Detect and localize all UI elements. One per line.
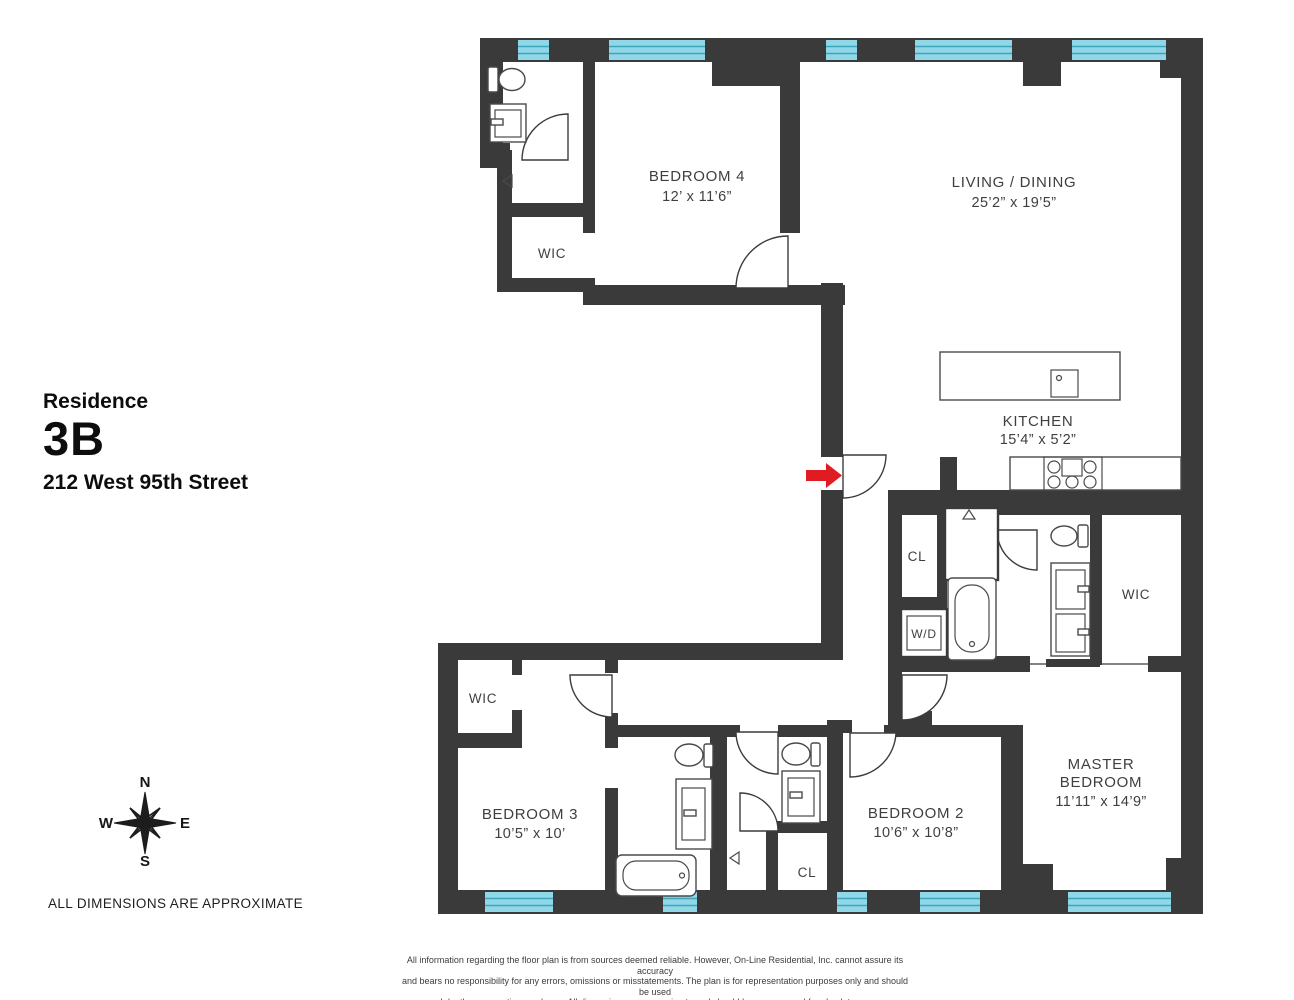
label-cl-hall: CL: [908, 549, 927, 564]
label-kitchen: KITCHEN: [1003, 413, 1074, 430]
label-cl-bed2: CL: [798, 865, 817, 880]
disclaimer: All information regarding the floor plan…: [400, 955, 910, 1000]
label-washer-dryer: W/D: [911, 627, 936, 641]
window-top-5: [1072, 40, 1166, 60]
window-top-3: [826, 40, 857, 60]
bath2-sink: [782, 771, 820, 823]
window-bottom-3: [837, 892, 867, 912]
bath2-toilet: [782, 743, 820, 766]
window-bottom-4: [920, 892, 980, 912]
bath1-sink: [676, 779, 712, 849]
door-master-bath-closet: [997, 530, 1037, 570]
compass-west: W: [99, 815, 114, 832]
door-bathroom-top: [522, 114, 568, 160]
kitchen-island: [940, 352, 1120, 400]
window-bottom-1: [485, 892, 553, 912]
dims-bedroom3: 10’5” x 10’: [494, 826, 565, 842]
label-living-dining: LIVING / DINING: [952, 174, 1077, 191]
dims-bedroom4: 12’ x 11’6”: [662, 189, 732, 205]
label-wic-bed3: WIC: [469, 691, 497, 706]
dims-kitchen: 15’4” x 5’2”: [1000, 432, 1077, 448]
window-top-1: [518, 40, 549, 60]
window-bottom-5: [1068, 892, 1171, 912]
compass-south: S: [140, 853, 150, 870]
closet-marker-bed2: [730, 852, 739, 864]
door-entry: [843, 455, 886, 498]
door-bedroom2: [850, 733, 896, 777]
door-bedroom3: [570, 675, 612, 717]
door-master-bedroom: [902, 675, 947, 720]
toilet-top-left: [488, 67, 525, 92]
floor-plan-drawing: BEDROOM 4 12’ x 11’6” LIVING / DINING 25…: [0, 0, 1294, 1000]
window-top-4: [915, 40, 1012, 60]
label-bedroom2: BEDROOM 2: [868, 805, 964, 822]
bath1-tub: [616, 855, 696, 896]
window-top-2: [609, 40, 705, 60]
label-master-bedroom-1: MASTER: [1068, 756, 1135, 773]
compass-north: N: [140, 774, 151, 791]
floor-plan-page: Residence 3B 212 West 95th Street: [0, 0, 1294, 1000]
entry-arrow: [806, 463, 842, 488]
dims-master-bedroom: 11’11” x 14’9”: [1055, 794, 1146, 810]
dims-living-dining: 25’2” x 19’5”: [972, 195, 1057, 211]
master-double-vanity: [1051, 563, 1090, 656]
disclaimer-line1: All information regarding the floor plan…: [400, 955, 910, 976]
compass-east: E: [180, 815, 190, 832]
dims-bedroom2: 10’6” x 10’8”: [874, 825, 959, 841]
sink-top-left: [490, 104, 526, 142]
bath1-toilet: [675, 744, 713, 767]
door-bedroom4: [736, 236, 788, 288]
master-tub: [948, 578, 996, 660]
door-bath2-lower: [740, 793, 778, 831]
master-toilet: [1051, 525, 1088, 547]
dimensions-note: ALL DIMENSIONS ARE APPROXIMATE: [48, 896, 303, 911]
kitchen-counter-stove: [1010, 457, 1181, 490]
master-bath-linen-closet: [945, 508, 998, 580]
master-pocket-door: [1023, 659, 1148, 667]
label-wic-master: WIC: [1122, 587, 1150, 602]
compass-rose: N E S W: [99, 774, 190, 870]
disclaimer-line2: and bears no responsibility for any erro…: [400, 976, 910, 997]
door-bath2-upper: [736, 732, 778, 774]
label-bedroom4: BEDROOM 4: [649, 168, 745, 185]
label-bedroom3: BEDROOM 3: [482, 806, 578, 823]
label-wic-bed4: WIC: [538, 246, 566, 261]
label-master-bedroom-2: BEDROOM: [1060, 774, 1142, 791]
